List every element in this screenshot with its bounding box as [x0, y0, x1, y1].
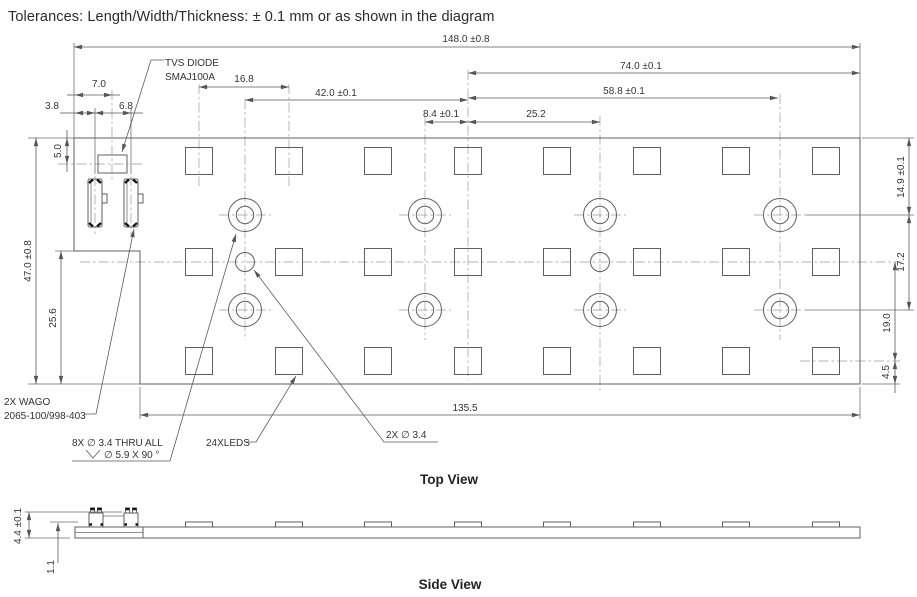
led-pad	[365, 348, 392, 375]
led-pad	[634, 148, 661, 175]
dim-width-8-4: 8.4 ±0.1	[423, 109, 460, 120]
tvs-label-1: TVS DIODE	[165, 58, 219, 69]
dim-height-4-5: 4.5	[881, 365, 892, 379]
led-profile	[276, 522, 303, 527]
holes-note-2: ∅ 5.9 X 90 °	[104, 450, 160, 461]
dim-side-thickness: 1.1	[46, 560, 57, 574]
centerlines	[58, 70, 902, 394]
dim-diode-offset: 5.0	[53, 144, 64, 158]
dim-led-pitch: 16.8	[234, 74, 254, 85]
dim-total-height: 47.0 ±0.8	[23, 240, 34, 282]
wago-label-1: 2X WAGO	[4, 397, 51, 408]
leds-leader	[246, 376, 296, 442]
wago-profile-2	[124, 508, 138, 527]
top-view: 148.0 ±0.8 74.0 ±0.1 58.8 ±0.1 42.0 ±0.1…	[4, 34, 914, 487]
led-pad	[544, 148, 571, 175]
led-profile	[813, 522, 840, 527]
tolerance-note: Tolerances: Length/Width/Thickness: ± 0.…	[8, 9, 495, 25]
board-profile	[75, 527, 860, 538]
leds-note: 24XLEDS	[206, 438, 250, 449]
side-dimensions: 4.4 ±0.1 1.1	[13, 508, 122, 574]
wago-leader	[84, 229, 134, 414]
led-profile	[186, 522, 213, 527]
led-pad	[813, 148, 840, 175]
dim-width-42: 42.0 ±0.1	[315, 88, 357, 99]
led-pad	[723, 348, 750, 375]
dim-width-3-8: 3.8	[45, 101, 59, 112]
dimension-labels: 148.0 ±0.8 74.0 ±0.1 58.8 ±0.1 42.0 ±0.1…	[23, 34, 907, 414]
wago-profile-1	[89, 508, 103, 527]
wago-connector-1	[88, 179, 107, 227]
mounting-holes	[219, 199, 806, 327]
dim-width-7-0: 7.0	[92, 79, 106, 90]
top-view-title: Top View	[420, 472, 479, 487]
drawing-page: Tolerances: Length/Width/Thickness: ± 0.…	[0, 0, 917, 597]
wago-label-2: 2065-100/998-403	[4, 411, 86, 422]
led-profile	[723, 522, 750, 527]
small-holes-note: 2X ∅ 3.4	[386, 430, 427, 441]
countersink-icon	[86, 450, 100, 458]
dim-width-25-2: 25.2	[526, 109, 546, 120]
dim-notch-height: 25.6	[48, 308, 59, 328]
led-profile	[634, 522, 661, 527]
dim-side-height: 4.4 ±0.1	[13, 508, 24, 545]
led-pad	[634, 348, 661, 375]
callouts: TVS DIODE SMAJ100A 2X WAGO 2065-100/998-…	[4, 58, 438, 461]
led-profile	[455, 522, 482, 527]
led-pad	[723, 148, 750, 175]
led-profile	[365, 522, 392, 527]
holes-note-1: 8X ∅ 3.4 THRU ALL	[72, 438, 163, 449]
side-view-title: Side View	[419, 577, 482, 592]
dim-height-17-2: 17.2	[896, 252, 907, 272]
led-pad	[365, 148, 392, 175]
engineering-drawing: Tolerances: Length/Width/Thickness: ± 0.…	[0, 0, 917, 597]
dim-width-58-8: 58.8 ±0.1	[603, 86, 645, 97]
dim-height-19-0: 19.0	[882, 313, 893, 333]
dim-height-14-9: 14.9 ±0.1	[896, 156, 907, 198]
side-view: 4.4 ±0.1 1.1 Side View	[13, 508, 860, 592]
led-pads	[186, 148, 840, 375]
tvs-label-2: SMAJ100A	[165, 72, 215, 83]
led-profile	[544, 522, 571, 527]
dim-width-135-5: 135.5	[452, 403, 477, 414]
led-profiles	[186, 522, 840, 527]
dim-total-width: 148.0 ±0.8	[442, 34, 490, 45]
wago-connector-2	[124, 179, 143, 227]
led-pad	[544, 348, 571, 375]
dim-width-74: 74.0 ±0.1	[620, 61, 662, 72]
small-hole-leader	[254, 270, 438, 442]
dim-width-6-8: 6.8	[119, 101, 133, 112]
led-pad	[276, 348, 303, 375]
